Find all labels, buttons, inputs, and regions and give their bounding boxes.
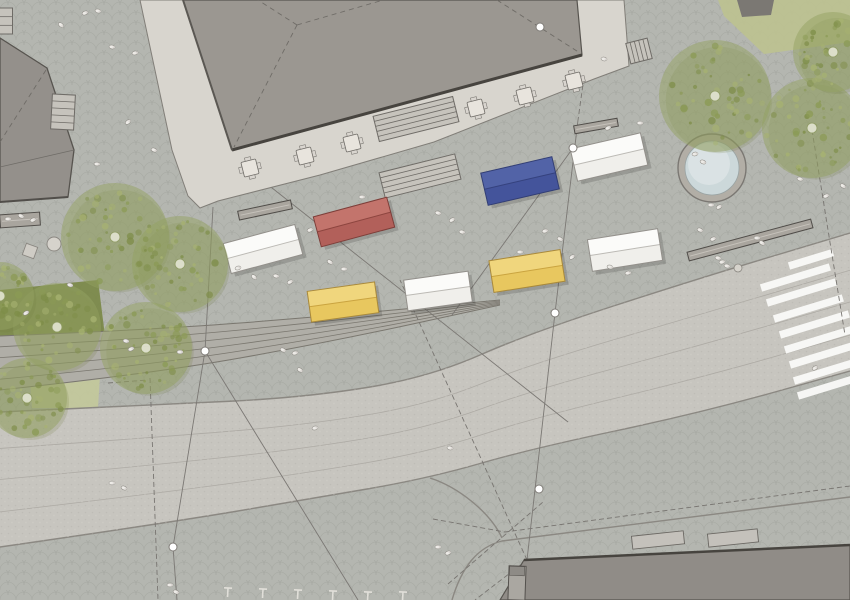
tree-foliage <box>46 292 51 297</box>
vehicle-cab <box>509 566 524 576</box>
tree-foliage <box>84 306 90 312</box>
tree-foliage <box>189 267 195 273</box>
tree-foliage <box>190 282 194 286</box>
tree-foliage <box>135 360 139 364</box>
tree-foliage <box>123 377 126 380</box>
tree-foliage <box>801 63 807 69</box>
person <box>708 203 714 207</box>
tree-foliage <box>117 190 123 196</box>
tree-foliage <box>81 326 85 330</box>
person <box>435 545 441 549</box>
tree-foliage <box>154 292 157 295</box>
tree-foliage <box>732 82 737 87</box>
tree-foliage <box>691 99 695 103</box>
tree-foliage <box>26 331 29 334</box>
tree-foliage <box>102 223 109 230</box>
tree-foliage <box>5 411 10 416</box>
tree-foliage <box>815 102 821 108</box>
tree-foliage <box>164 357 168 361</box>
tree-foliage <box>818 63 823 68</box>
tree-foliage <box>92 200 99 207</box>
tree-foliage <box>72 313 78 319</box>
tree-foliage <box>803 35 808 40</box>
tree-foliage <box>708 117 715 124</box>
tree-foliage <box>39 289 46 296</box>
tree-foliage <box>804 41 809 46</box>
tree-foliage <box>62 301 65 304</box>
tree-foliage <box>150 284 155 289</box>
tree-foliage <box>734 96 740 102</box>
tree-foliage <box>97 282 100 285</box>
tree-foliage <box>825 35 828 38</box>
tree-foliage <box>176 224 182 230</box>
tree-foliage <box>695 64 700 69</box>
tree-foliage <box>834 149 839 154</box>
corner-stair-northwest <box>0 8 13 34</box>
tree-foliage <box>79 214 86 221</box>
tree-foliage <box>119 316 122 319</box>
tree-foliage <box>169 365 175 371</box>
person <box>177 350 183 354</box>
tree-foliage <box>106 245 111 250</box>
tree-foliage <box>792 95 799 102</box>
tree-foliage <box>729 87 736 94</box>
tree-foliage <box>821 73 827 79</box>
tree-foliage <box>669 82 675 88</box>
tree-foliage <box>162 362 168 368</box>
tree-foliage <box>97 237 102 242</box>
tree-foliage <box>746 131 753 138</box>
tree-foliage <box>786 153 790 157</box>
tree-foliage <box>111 365 115 369</box>
tree-foliage <box>180 255 183 258</box>
tree-foliage <box>135 229 141 235</box>
tree-foliage <box>746 98 752 104</box>
tree-foliage <box>35 314 40 319</box>
tree-trunk <box>110 232 120 242</box>
tree-foliage <box>181 221 185 225</box>
tree-foliage <box>2 304 4 306</box>
tree-foliage <box>162 345 167 350</box>
tree-foliage <box>712 43 719 50</box>
tree-foliage <box>32 429 39 436</box>
tree-foliage <box>5 315 11 321</box>
tree-foliage <box>830 62 837 69</box>
tree-foliage <box>181 333 187 339</box>
tree-foliage <box>45 299 49 303</box>
tree-foliage <box>794 104 798 108</box>
tree-foliage <box>145 285 150 290</box>
litter-bin <box>734 264 742 272</box>
tree-foliage <box>89 238 92 241</box>
tree-foliage <box>803 51 805 53</box>
tree-foliage <box>823 116 826 119</box>
tree-foliage <box>150 332 156 338</box>
tree-foliage <box>169 280 173 284</box>
tree-foliage <box>777 95 782 100</box>
tree-foliage <box>174 239 178 243</box>
tree-foliage <box>127 237 134 244</box>
tree-foliage <box>35 382 42 389</box>
person <box>341 267 347 271</box>
tree-foliage <box>810 36 814 40</box>
tree-foliage <box>174 232 178 236</box>
tree-foliage <box>803 166 809 172</box>
tree-foliage <box>75 348 81 354</box>
tree-foliage <box>163 267 169 273</box>
tree-foliage <box>138 197 143 202</box>
tree-foliage <box>21 276 27 282</box>
tree-foliage <box>798 168 801 171</box>
plan-root <box>0 0 850 600</box>
survey-node <box>535 485 543 493</box>
tree-foliage <box>109 207 112 210</box>
tree-foliage <box>15 392 22 399</box>
tree-foliage <box>24 418 32 426</box>
tree-foliage <box>689 121 692 124</box>
tree-foliage <box>693 85 697 89</box>
tree-foliage <box>696 69 701 74</box>
tree-foliage <box>25 365 31 371</box>
tree-foliage <box>55 402 61 408</box>
tree-foliage <box>127 372 130 375</box>
tree-foliage <box>174 325 181 332</box>
tree-foliage <box>42 308 49 315</box>
tree-foliage <box>30 375 34 379</box>
tree-foliage <box>836 34 840 38</box>
survey-node <box>536 23 544 31</box>
tree-foliage <box>3 372 7 376</box>
tree-foliage <box>748 74 750 76</box>
tree-foliage <box>45 320 49 324</box>
person <box>94 162 100 166</box>
tree-foliage <box>78 248 83 253</box>
tree-foliage <box>774 154 779 159</box>
tree-foliage <box>51 412 56 417</box>
tree-foliage <box>20 388 23 391</box>
tree-foliage <box>37 396 43 402</box>
cafe-table-top <box>467 99 485 117</box>
tree-foliage <box>727 96 732 101</box>
tree-foliage <box>168 302 171 305</box>
tree-foliage <box>66 314 69 317</box>
tree-foliage <box>193 244 198 249</box>
tree-foliage <box>41 344 44 347</box>
tree-foliage <box>193 263 196 266</box>
tree-foliage <box>819 100 821 102</box>
cafe-table-top <box>343 134 361 152</box>
tree-foliage <box>105 264 111 270</box>
tree-foliage <box>739 130 744 135</box>
tree-foliage <box>211 259 218 266</box>
tree-foliage <box>119 278 122 281</box>
tree-foliage <box>136 261 142 267</box>
tree-foliage <box>206 291 213 298</box>
tree-foliage <box>728 131 730 133</box>
tree-foliage <box>170 335 174 339</box>
tree-foliage <box>690 52 696 58</box>
tree-foliage <box>78 265 85 272</box>
tree-foliage <box>803 131 806 134</box>
tree-foliage <box>145 371 148 374</box>
tree-foliage <box>35 414 43 422</box>
tree-foliage <box>830 160 836 166</box>
tree-foliage <box>116 372 122 378</box>
cafe-table-top <box>516 87 534 105</box>
tree-foliage <box>806 110 813 117</box>
tree-foliage <box>163 380 167 384</box>
tree-foliage <box>140 315 144 319</box>
tree-foliage <box>797 140 804 147</box>
tree-foliage <box>158 379 161 382</box>
tree-foliage <box>15 291 22 298</box>
tree-foliage <box>39 321 41 323</box>
tree-foliage <box>793 128 800 135</box>
tree-foliage <box>10 386 16 392</box>
tree-trunk <box>710 91 720 101</box>
person <box>517 250 523 254</box>
tree-foliage <box>139 384 144 389</box>
tree-foliage <box>830 108 833 111</box>
cafe-table-top <box>241 159 259 177</box>
tree-foliage <box>712 125 719 132</box>
tree-foliage <box>156 275 161 280</box>
tree-foliage <box>150 255 154 259</box>
tree-foliage <box>834 20 841 27</box>
person <box>5 217 11 221</box>
tree-foliage <box>143 380 146 383</box>
tree-foliage <box>155 242 161 248</box>
tree-foliage <box>775 139 778 142</box>
tree-foliage <box>730 106 734 110</box>
tree-foliage <box>55 379 60 384</box>
survey-node <box>551 309 559 317</box>
tree-foliage <box>6 266 10 270</box>
tree-foliage <box>175 359 178 362</box>
tree-foliage <box>20 380 25 385</box>
tree-foliage <box>58 307 63 312</box>
tree-foliage <box>178 343 181 346</box>
round-planter <box>47 237 61 251</box>
tree-foliage <box>787 114 791 118</box>
tree-foliage <box>194 299 197 302</box>
tree-foliage <box>49 370 53 374</box>
tree-foliage <box>123 321 131 329</box>
tree-foliage <box>132 311 137 316</box>
tree-foliage <box>112 345 116 349</box>
tree-foliage <box>703 69 707 73</box>
tree-foliage <box>826 126 829 129</box>
tree-foliage <box>720 135 724 139</box>
tree-foliage <box>822 107 825 110</box>
cafe-table-top <box>296 147 314 165</box>
tree-foliage <box>17 284 20 287</box>
tree-foliage <box>23 411 26 414</box>
tree-foliage <box>776 101 783 108</box>
site-plan-viewport <box>0 0 850 600</box>
tree-foliage <box>85 197 89 201</box>
cafe-table-top <box>565 72 583 90</box>
person <box>754 236 760 240</box>
tree-trunk <box>807 123 817 133</box>
tree-foliage <box>67 342 73 348</box>
tree-foliage <box>196 272 199 275</box>
tree-foliage <box>52 335 55 338</box>
tree-foliage <box>95 325 98 328</box>
tree-foliage <box>166 333 171 338</box>
person <box>167 583 173 587</box>
tree-foliage <box>48 387 54 393</box>
tree-foliage <box>839 106 843 110</box>
tree-foliage <box>839 146 841 148</box>
tree-foliage <box>11 425 17 431</box>
west-stair <box>51 94 76 130</box>
tree-foliage <box>811 39 814 42</box>
tree-foliage <box>219 246 223 250</box>
tree-foliage <box>744 114 750 120</box>
site-plan <box>0 0 850 600</box>
tree-foliage <box>78 304 81 307</box>
tree-foliage <box>109 324 114 329</box>
tree-foliage <box>161 225 165 229</box>
tree-foliage <box>680 92 683 95</box>
person <box>359 195 365 199</box>
tree-foliage <box>810 30 816 36</box>
building-corner-northeast <box>737 0 774 17</box>
tree-foliage <box>4 388 10 394</box>
tree-foliage <box>105 231 108 234</box>
tree-foliage <box>7 397 13 403</box>
tree-foliage <box>179 286 184 291</box>
tree-foliage <box>86 264 91 269</box>
tree-foliage <box>804 55 810 61</box>
tree-foliage <box>809 55 812 58</box>
tree-trunk <box>22 393 32 403</box>
survey-node <box>169 543 177 551</box>
tree-foliage <box>126 201 130 205</box>
tree-foliage <box>87 328 93 334</box>
terrace-steps-east <box>626 38 652 64</box>
tree-foliage <box>816 63 819 66</box>
tree-foliage <box>710 58 716 64</box>
tree-foliage <box>123 269 127 273</box>
tree-foliage <box>713 141 718 146</box>
tree-foliage <box>804 89 807 92</box>
tree-foliage <box>44 425 47 428</box>
tree-foliage <box>771 112 777 118</box>
tree-foliage <box>676 102 681 107</box>
tree-foliage <box>1 307 8 314</box>
tree-foliage <box>27 338 31 342</box>
tree-foliage <box>53 387 60 394</box>
tree-foliage <box>26 362 30 366</box>
tree-foliage <box>144 331 149 336</box>
tree-foliage <box>167 271 171 275</box>
tree-foliage <box>205 230 209 234</box>
tree-foliage <box>814 69 821 76</box>
tree-foliage <box>198 226 204 232</box>
tree-foliage <box>178 276 181 279</box>
tree-foliage <box>701 66 705 70</box>
tree-foliage <box>149 327 151 329</box>
tree-foliage <box>11 274 18 281</box>
tree-foliage <box>90 316 96 322</box>
tree-foliage <box>118 244 122 248</box>
tree-foliage <box>754 119 758 123</box>
tree-foliage <box>731 101 734 104</box>
tree-foliage <box>45 357 52 364</box>
tree-foliage <box>173 344 177 348</box>
tree-foliage <box>759 100 765 106</box>
tree-foliage <box>738 90 745 97</box>
tree-foliage <box>138 372 142 376</box>
tree-foliage <box>169 326 174 331</box>
tree-foliage <box>50 299 56 305</box>
tree-foliage <box>680 105 687 112</box>
tree-foliage <box>186 220 189 223</box>
tree-foliage <box>104 208 107 211</box>
tree-foliage <box>812 78 817 83</box>
tree-foliage <box>124 316 128 320</box>
tree-trunk <box>52 322 62 332</box>
tree-foliage <box>66 233 71 238</box>
tree-foliage <box>836 68 839 71</box>
tree-foliage <box>56 294 62 300</box>
tree-foliage <box>16 280 21 285</box>
tree-foliage <box>0 372 3 375</box>
tree-foliage <box>91 247 98 254</box>
tree-foliage <box>840 62 847 69</box>
tree-foliage <box>25 303 29 307</box>
tree-foliage <box>137 216 143 222</box>
tree-foliage <box>148 247 154 253</box>
tree-foliage <box>733 109 739 115</box>
tree-foliage <box>153 340 157 344</box>
tree-foliage <box>23 338 27 342</box>
survey-node <box>569 144 577 152</box>
tree-foliage <box>54 351 58 355</box>
survey-node <box>201 347 209 355</box>
tree-foliage <box>53 375 56 378</box>
tree-foliage <box>161 324 165 328</box>
tree-foliage <box>821 44 825 48</box>
tree-foliage <box>140 309 143 312</box>
tree-foliage <box>715 113 720 118</box>
tree-foliage <box>144 264 151 271</box>
tree-foliage <box>757 79 761 83</box>
tree-foliage <box>95 194 99 198</box>
person <box>109 481 115 485</box>
tree-foliage <box>109 214 113 218</box>
tree-foliage <box>110 250 113 253</box>
tree-foliage <box>103 215 108 220</box>
tree-foliage <box>90 208 96 214</box>
tree-foliage <box>21 282 24 285</box>
tree-foliage <box>740 78 743 81</box>
tree-foliage <box>822 150 825 153</box>
tree-foliage <box>160 256 163 259</box>
tree-foliage <box>830 83 833 86</box>
tree-foliage <box>764 133 770 139</box>
tree-foliage <box>705 99 712 106</box>
tree-foliage <box>53 313 56 316</box>
tree-trunk <box>141 343 151 353</box>
tree-foliage <box>157 265 163 271</box>
tree-foliage <box>175 335 182 342</box>
tree-foliage <box>788 89 790 91</box>
tree-foliage <box>76 291 81 296</box>
tree-foliage <box>40 348 43 351</box>
